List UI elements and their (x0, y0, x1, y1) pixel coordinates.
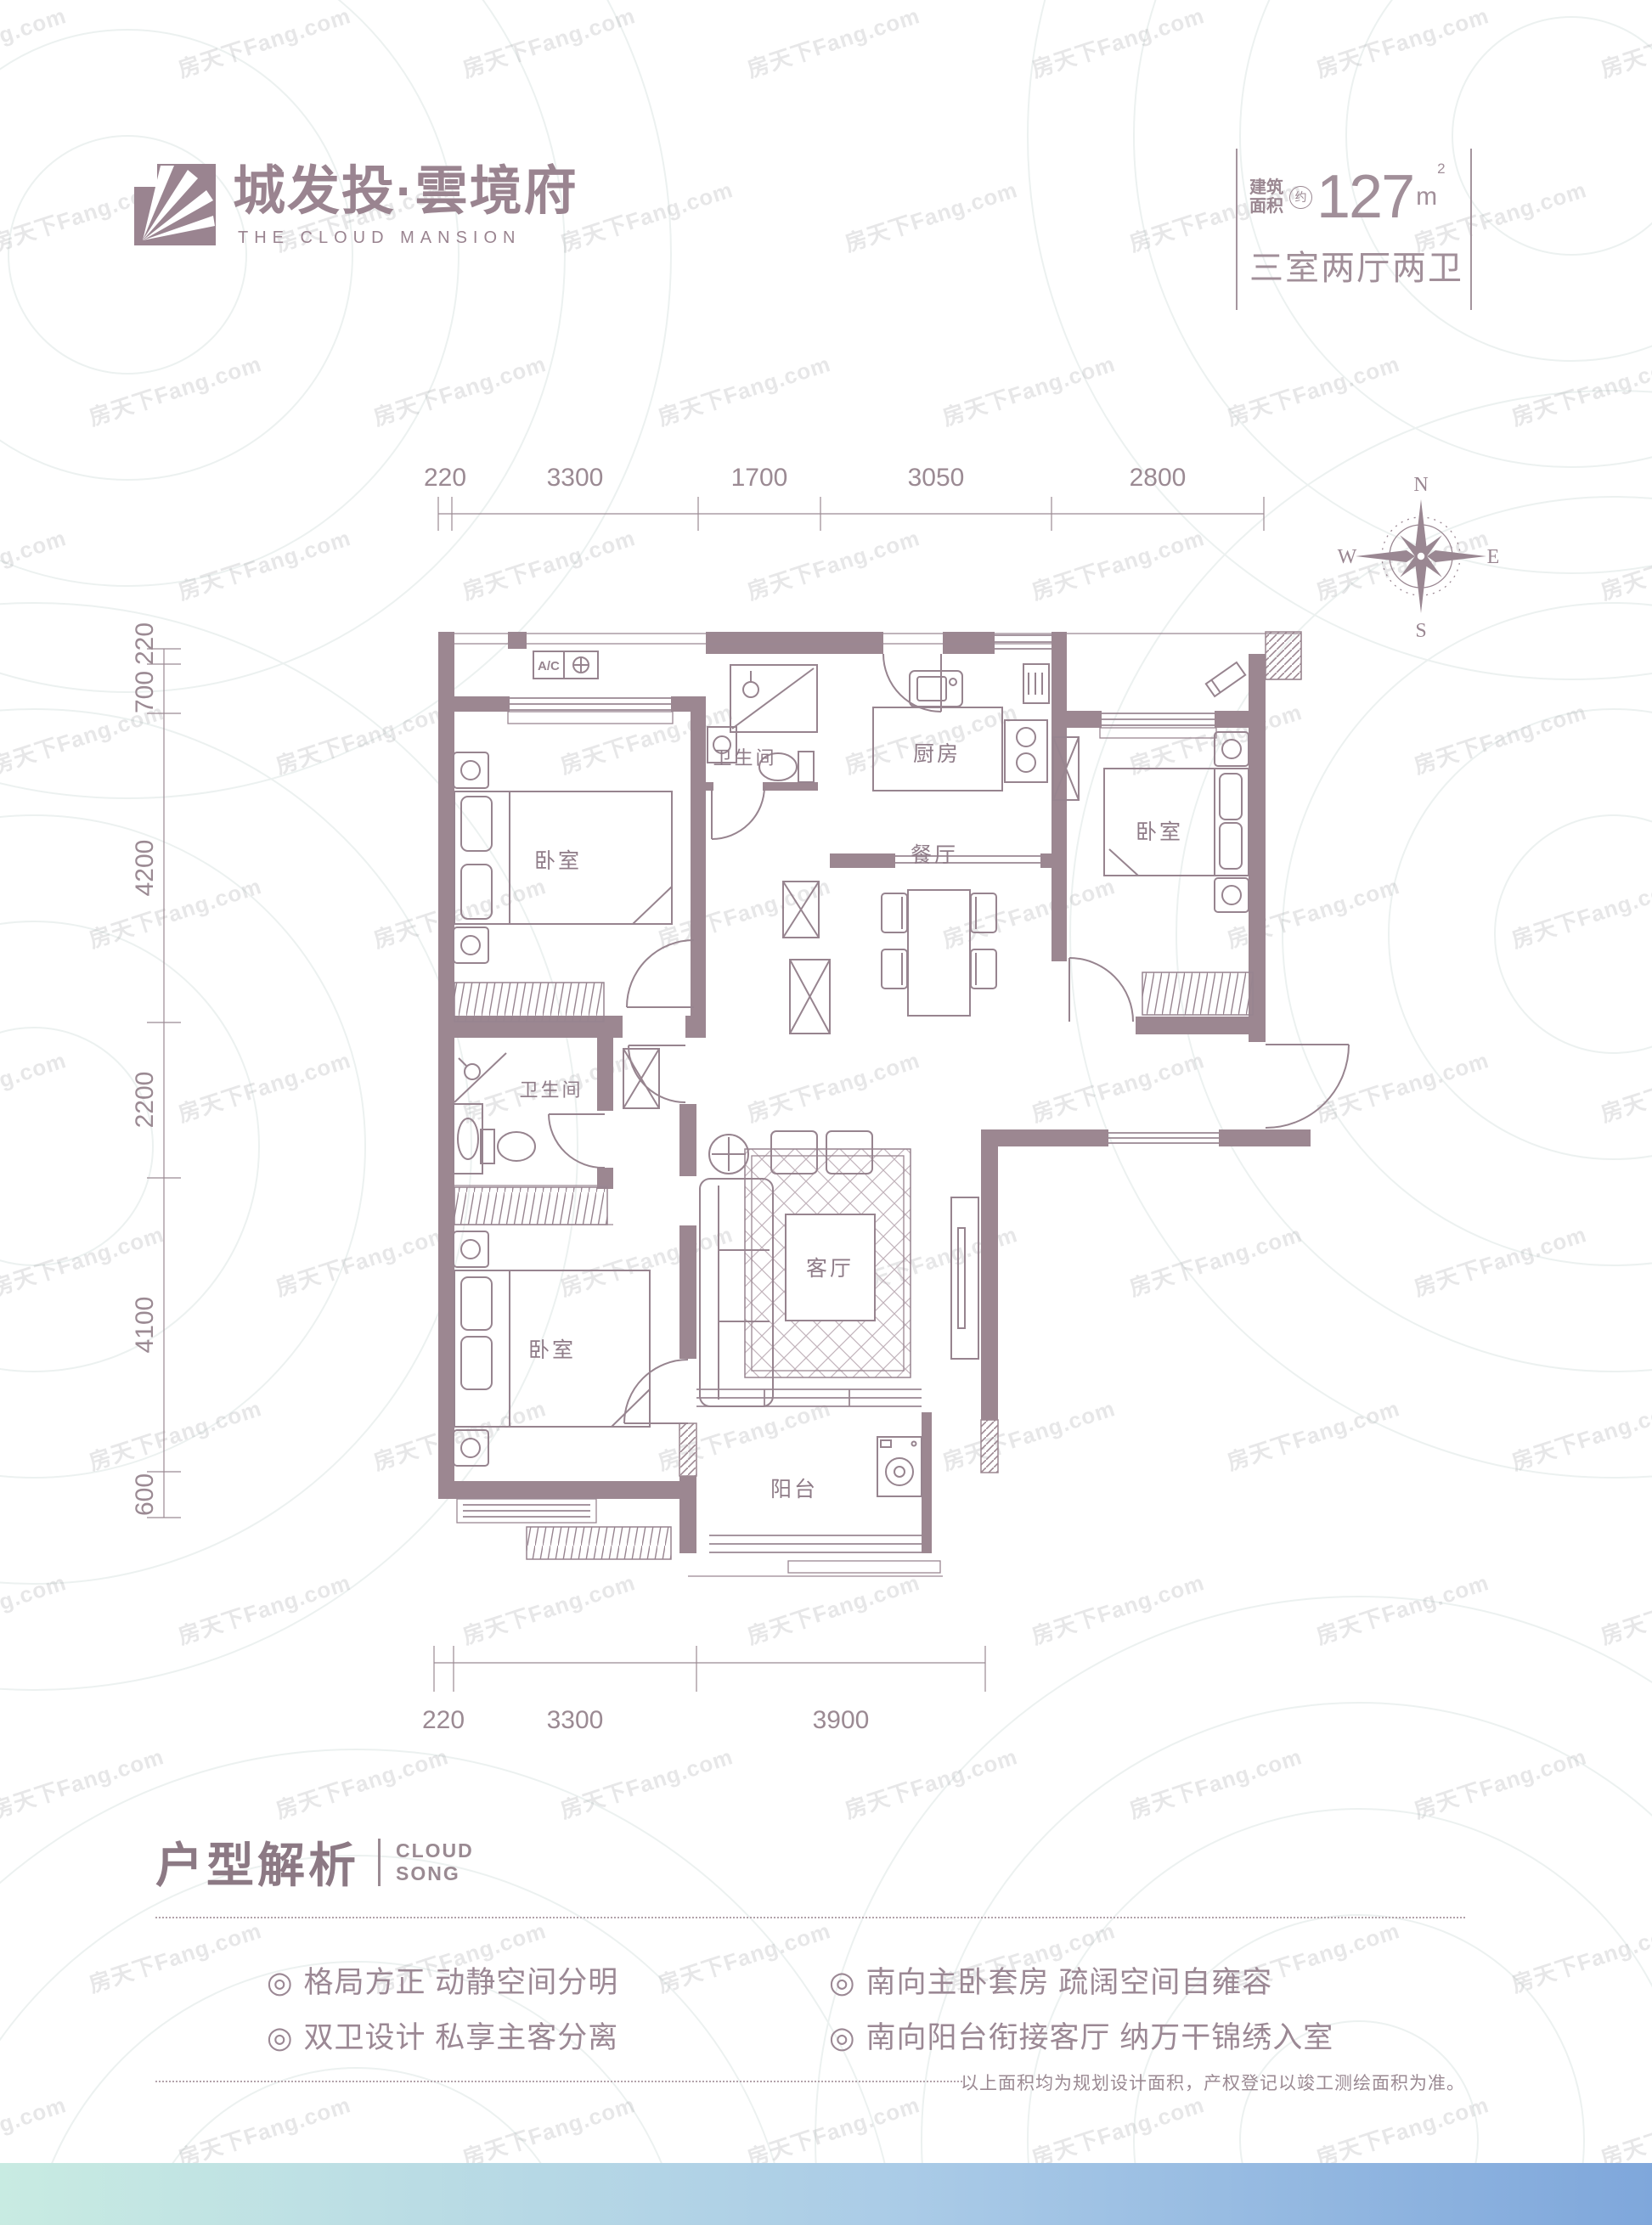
compass-s: S (1415, 620, 1426, 642)
room-label-bedroom-e: 卧室 (1136, 820, 1183, 844)
bottom-gradient-bar (0, 2163, 1652, 2225)
structure-lines (438, 634, 1301, 1576)
section-subtitle: CLOUD SONG (396, 1839, 474, 1885)
svg-text:2200: 2200 (131, 1072, 159, 1129)
svg-text:220: 220 (424, 464, 466, 492)
selling-point: ◎格局方正 动静空间分明 (267, 1958, 618, 2002)
svg-text:700: 700 (131, 671, 159, 713)
dimension-left: 220 700 4200 2200 4100 600 (131, 622, 181, 1518)
svg-text:4200: 4200 (131, 840, 159, 897)
svg-text:3300: 3300 (547, 1706, 604, 1734)
room-label-bath-top: 卫生间 (713, 747, 776, 769)
room-label-living: 客厅 (806, 1257, 854, 1281)
balcony-furniture (877, 1437, 922, 1496)
compass-e: E (1487, 546, 1500, 568)
room-label-dining: 餐厅 (911, 843, 958, 867)
compass-w: W (1338, 546, 1357, 568)
svg-text:3900: 3900 (813, 1706, 870, 1734)
disclaimer: 以上面积均为规划设计面积，产权登记以竣工测绘面积为准。 (961, 2070, 1465, 2095)
room-label-kitchen: 厨房 (913, 742, 961, 766)
svg-text:600: 600 (131, 1473, 159, 1516)
compass-n: N (1413, 474, 1428, 496)
dotted-divider-top (155, 1917, 1465, 1918)
room-label-bedroom-sw: 卧室 (528, 1338, 576, 1362)
ac-unit-icon (1206, 662, 1245, 696)
section-title: 户型解析 (155, 1828, 359, 1896)
selling-point: ◎双卫设计 私享主客分离 (267, 2014, 618, 2057)
svg-text:3300: 3300 (547, 464, 604, 492)
dotted-divider-bottom (155, 2081, 962, 2082)
bath-mid-furniture (454, 1053, 535, 1174)
dimension-top: 220 3300 1700 3050 2800 (424, 464, 1264, 531)
svg-text:1700: 1700 (731, 464, 788, 492)
svg-text:220: 220 (422, 1706, 465, 1734)
svg-text:220: 220 (131, 622, 159, 665)
flyer-page: 房天下Fang.com房天下Fang.com房天下Fang.com房天下Fang… (0, 0, 1652, 2225)
compass-icon: N S W E (1338, 474, 1500, 642)
svg-text:2800: 2800 (1130, 464, 1187, 492)
selling-point: ◎南向阳台衔接客厅 纳万干锦绣入室 (829, 2014, 1333, 2057)
ac-platform: A/C (533, 651, 1245, 696)
dimension-bottom: 220 3300 3900 (422, 1646, 985, 1734)
svg-text:4100: 4100 (131, 1297, 159, 1354)
section-divider (378, 1839, 381, 1886)
svg-text:3050: 3050 (908, 464, 965, 492)
kitchen-furniture (873, 664, 1049, 791)
room-label-balcony: 阳台 (770, 1478, 818, 1501)
ac-label: A/C (538, 659, 560, 673)
section-heading: 户型解析 CLOUD SONG (155, 1828, 474, 1896)
selling-point: ◎南向主卧套房 疏阔空间自雍容 (829, 1958, 1272, 2002)
room-label-bedroom-nw: 卧室 (534, 849, 582, 873)
room-label-bath-mid: 卫生间 (519, 1079, 583, 1101)
dining-furniture (882, 890, 996, 1016)
